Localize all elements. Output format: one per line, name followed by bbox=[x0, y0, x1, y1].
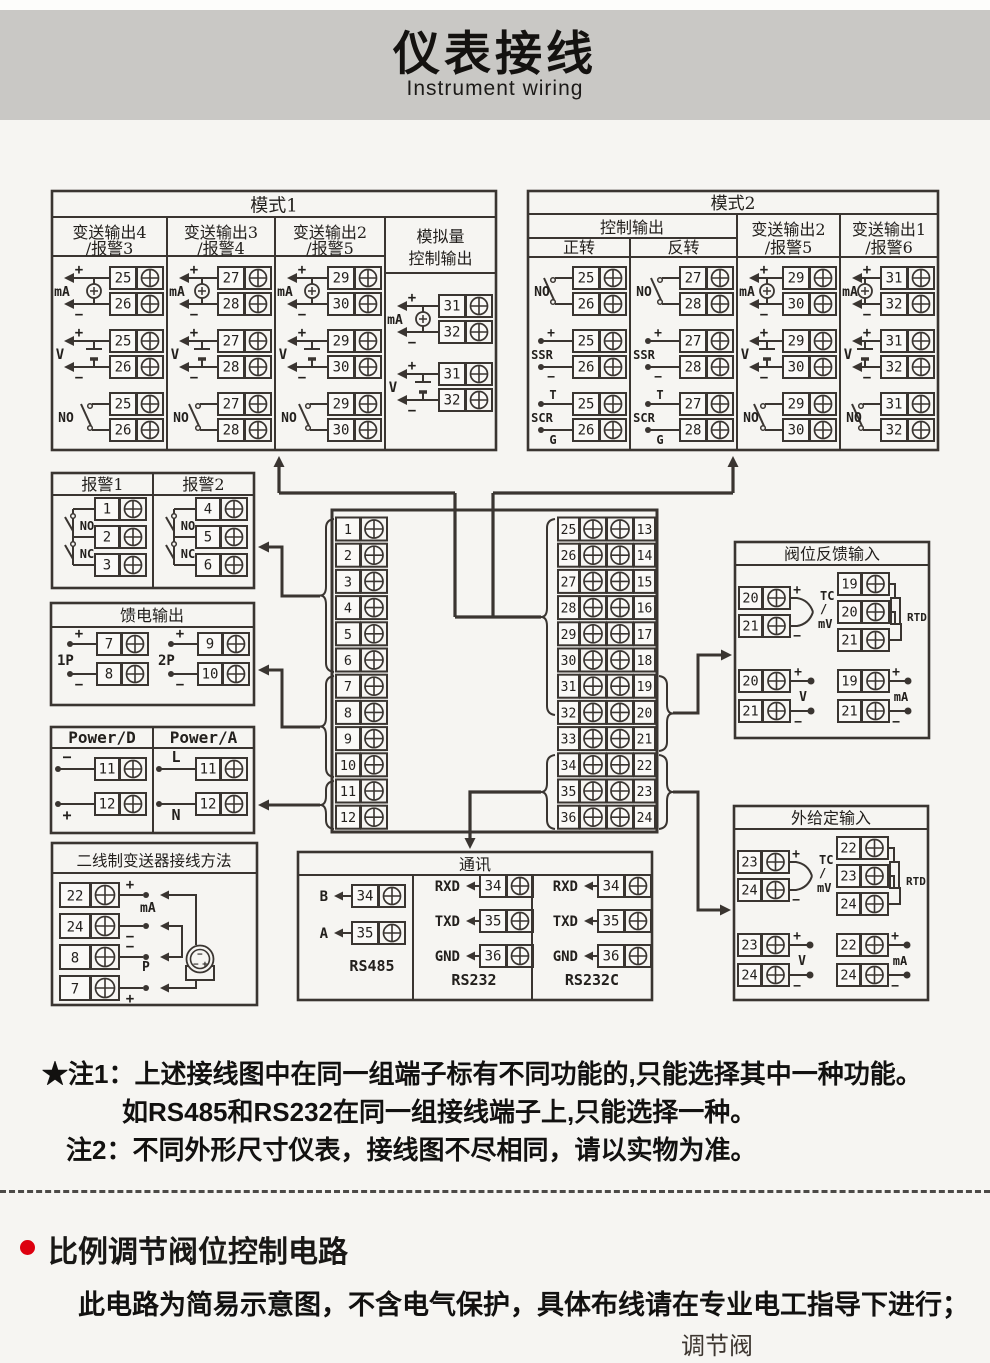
terminal-25: 25 bbox=[110, 330, 163, 352]
diagram-label: 30 bbox=[333, 297, 350, 313]
diagram-label: 27 bbox=[223, 271, 240, 287]
terminal-2: 2 bbox=[95, 526, 146, 548]
terminal-26: 26 bbox=[110, 293, 163, 315]
wiring-cell-SCR: 2526TGSCR bbox=[531, 388, 626, 447]
diagram-label: 报警2 bbox=[182, 475, 224, 494]
diagram-label: 28 bbox=[223, 360, 240, 376]
diagram-label: mA bbox=[893, 954, 908, 968]
diagram-label: − bbox=[892, 715, 900, 730]
valve-caption: 调节阀 bbox=[681, 1326, 753, 1361]
terminal-22: 22 bbox=[837, 934, 888, 956]
diagram-label: 30 bbox=[788, 360, 805, 376]
arrowhead-icon bbox=[721, 650, 732, 661]
terminal-7: 7 bbox=[97, 633, 148, 655]
comm-section-RS485: B34A35RS485 bbox=[320, 885, 405, 975]
diagram-label: V bbox=[389, 380, 398, 396]
terminal-29: 29 bbox=[783, 267, 836, 289]
wiring-cell-SSR: 2526+−SSR bbox=[531, 326, 626, 385]
diagram-label: TXD bbox=[435, 914, 460, 930]
diagram-label: + bbox=[62, 806, 71, 824]
diagram-label: 二线制变送器接线方法 bbox=[76, 852, 231, 870]
tc-mv-input: 2021+−TC/mV bbox=[739, 583, 834, 644]
diagram-label: 6 bbox=[204, 558, 212, 574]
current-input: 2224+−mA bbox=[837, 929, 911, 994]
terminal-34: 34 bbox=[480, 875, 533, 897]
diagram-label: Power/D bbox=[68, 728, 135, 747]
terminal-20: 20 bbox=[739, 587, 790, 609]
diagram-label: NO bbox=[636, 285, 652, 300]
terminal-group-brace bbox=[659, 755, 673, 829]
terminal-36: 36 bbox=[598, 945, 651, 967]
terminal-row-35: 3523 bbox=[558, 780, 655, 803]
arrowhead-icon bbox=[852, 299, 862, 309]
terminal-21: 21 bbox=[838, 629, 889, 651]
diagram-label: 25 bbox=[578, 271, 595, 287]
terminal-2: 2 bbox=[336, 544, 387, 567]
terminal-29: 29 bbox=[328, 267, 381, 289]
note-2-text: 不同外形尺寸仪表，接线图不尽相同，请以实物为准。 bbox=[132, 1135, 756, 1165]
diagram-label: V bbox=[741, 347, 750, 363]
terminal-10: 10 bbox=[336, 753, 387, 776]
diagram-label: T bbox=[656, 388, 663, 402]
terminal-27: 27 bbox=[218, 330, 271, 352]
terminal-30: 30 bbox=[328, 293, 381, 315]
diagram-label: mA bbox=[739, 285, 755, 300]
diagram-label: TC bbox=[820, 589, 834, 603]
diagram-label: 36 bbox=[603, 949, 620, 965]
wiring-cell-NO: 2728NO bbox=[173, 393, 271, 441]
diagram-label: V bbox=[799, 690, 807, 705]
diagram-label: 29 bbox=[333, 334, 350, 350]
section-body: 此电路为简易示意图，不含电气保护，具体布线请在专业电工指导下进行； bbox=[78, 1283, 969, 1322]
diagram-label: SSR bbox=[531, 348, 553, 362]
terminal-8: 8 bbox=[60, 945, 119, 969]
diagram-label: + bbox=[654, 326, 662, 341]
terminal-36: 36 bbox=[480, 945, 533, 967]
diagram-label: 2 bbox=[103, 530, 111, 546]
diagram-label: 35 bbox=[603, 914, 620, 930]
diagram-label: + bbox=[863, 262, 871, 278]
terminal-23: 23 bbox=[738, 851, 789, 873]
diagram-label: 27 bbox=[685, 334, 702, 350]
terminal-31: 31 bbox=[881, 393, 934, 415]
terminal-26: 26 bbox=[573, 356, 626, 378]
diagram-label: − bbox=[792, 893, 800, 908]
diagram-label: + bbox=[863, 325, 871, 341]
terminal-31: 31 bbox=[881, 330, 934, 352]
diagram-label: V bbox=[171, 347, 180, 363]
terminal-24: 24 bbox=[738, 964, 789, 986]
tc-mv-input: 2324+−TC/mV bbox=[738, 847, 833, 908]
terminal-row-31: 3119 bbox=[558, 675, 655, 698]
diagram-label: 馈电输出 bbox=[120, 606, 184, 625]
arrowhead-icon bbox=[465, 838, 476, 849]
diagram-label: NO bbox=[173, 411, 189, 426]
diagram-label: 26 bbox=[115, 360, 132, 376]
terminal-3: 3 bbox=[95, 554, 146, 576]
diagram-label: A bbox=[320, 926, 329, 942]
terminal-9: 9 bbox=[198, 633, 249, 655]
terminal-28: 28 bbox=[218, 293, 271, 315]
diagram-label: RXD bbox=[553, 879, 578, 895]
diagram-label: 28 bbox=[561, 602, 577, 617]
diagram-label: − bbox=[75, 677, 83, 693]
terminal-21: 21 bbox=[739, 700, 790, 722]
diagram-label: 35 bbox=[485, 914, 502, 930]
terminal-35: 35 bbox=[598, 910, 651, 932]
diagram-label: 11 bbox=[200, 762, 217, 778]
diagram-label: 27 bbox=[685, 271, 702, 287]
diagram-label: 4 bbox=[204, 502, 212, 518]
diagram-label: 35 bbox=[357, 926, 374, 942]
arrowhead-icon bbox=[334, 892, 343, 901]
terminal-row-36: 3624 bbox=[558, 806, 655, 829]
terminal-28: 28 bbox=[218, 356, 271, 378]
terminal-32: 32 bbox=[881, 419, 934, 441]
terminal-30: 30 bbox=[328, 356, 381, 378]
box-mode1: 模式1变送输出4/报警32526+−mA2526+−V2526NO变送输出3/报… bbox=[52, 191, 496, 450]
box-feed-output: 馈电输出78+−1P910+−2P bbox=[51, 603, 254, 705]
current-input: 1921+−mA bbox=[838, 665, 912, 730]
diagram-label: V bbox=[844, 347, 853, 363]
diagram-label: V bbox=[56, 347, 65, 363]
diagram-label: 26 bbox=[561, 549, 577, 564]
terminal-23: 23 bbox=[837, 865, 888, 887]
diagram-label: 23 bbox=[741, 855, 757, 871]
diagram-label: + bbox=[792, 847, 800, 862]
diagram-label: 29 bbox=[333, 397, 350, 413]
terminal-32: 32 bbox=[881, 293, 934, 315]
diagram-label: mA bbox=[169, 285, 185, 300]
diagram-label: + bbox=[190, 262, 198, 278]
note-1-text: 上述接线图中在同一组端子标有不同功能的,只能选择其中一种功能。 bbox=[134, 1059, 921, 1089]
terminal-19: 19 bbox=[838, 670, 889, 692]
terminal-20: 20 bbox=[739, 670, 790, 692]
diagram-label: + bbox=[794, 665, 802, 680]
comm-section-RS232C: RXD34TXD35GND36RS232C bbox=[553, 875, 651, 989]
arrowhead-icon bbox=[160, 891, 169, 900]
diagram-label: + bbox=[75, 325, 83, 341]
diagram-label: /报警5 bbox=[306, 239, 354, 258]
diagram-label: + bbox=[202, 960, 208, 970]
wiring-cell-NO: 2930NO bbox=[281, 393, 381, 441]
diagram-label: 变送输出2 bbox=[751, 220, 825, 239]
terminal-29: 29 bbox=[328, 393, 381, 415]
terminal-29: 29 bbox=[783, 393, 836, 415]
diagram-label: + bbox=[408, 290, 416, 306]
arrowhead-icon bbox=[287, 299, 297, 309]
diagram-label: 21 bbox=[742, 704, 758, 720]
terminal-24: 24 bbox=[837, 964, 888, 986]
diagram-label: 28 bbox=[685, 360, 702, 376]
diagram-label: 34 bbox=[357, 889, 374, 905]
diagram-label: + bbox=[126, 877, 134, 893]
terminal-5: 5 bbox=[196, 526, 247, 548]
dashed-separator bbox=[0, 1190, 990, 1193]
red-bullet-icon bbox=[20, 1240, 35, 1255]
diagram-label: 21 bbox=[841, 704, 857, 720]
diagram-label: − bbox=[298, 370, 306, 386]
wiring-cell-NO: 2728NO bbox=[636, 267, 733, 315]
note-1-head: ★注1： bbox=[42, 1059, 134, 1089]
diagram-label: 14 bbox=[637, 549, 653, 564]
diagram-label: 17 bbox=[637, 628, 653, 643]
diagram-label: + bbox=[793, 929, 801, 944]
terminal-4: 4 bbox=[196, 498, 247, 520]
terminal-34: 34 bbox=[598, 875, 651, 897]
diagram-label: − bbox=[298, 307, 306, 323]
terminal-11: 11 bbox=[196, 758, 247, 780]
diagram-label: 15 bbox=[637, 575, 653, 590]
diagram-label: 10 bbox=[340, 758, 356, 774]
diagram-label: 20 bbox=[742, 591, 758, 607]
box-mode2: 模式2控制输出正转2526NO2526+−SSR2526TGSCR反转2728N… bbox=[528, 191, 938, 450]
terminal-28: 28 bbox=[218, 419, 271, 441]
diagram-label: 32 bbox=[886, 423, 903, 439]
arrowhead-icon bbox=[397, 301, 407, 311]
rtd-input: 222324RTD bbox=[837, 837, 926, 915]
diagram-label: 31 bbox=[444, 367, 461, 383]
diagram-label: 3 bbox=[103, 558, 111, 574]
diagram-label: + bbox=[547, 326, 555, 341]
diagram-label: + bbox=[892, 665, 900, 680]
diagram-label: 35 bbox=[561, 785, 577, 800]
diagram-label: 36 bbox=[485, 949, 502, 965]
diagram-label: 21 bbox=[841, 633, 857, 649]
terminal-27: 27 bbox=[680, 393, 733, 415]
diagram-label: mA bbox=[54, 285, 70, 300]
arrowhead-icon bbox=[64, 362, 74, 372]
terminal-group-brace bbox=[541, 519, 555, 715]
terminal-25: 25 bbox=[573, 330, 626, 352]
diagram-label: 20 bbox=[841, 605, 857, 621]
terminal-row-34: 3422 bbox=[558, 753, 655, 776]
diagram-label: 反转 bbox=[667, 238, 699, 257]
terminal-31: 31 bbox=[881, 267, 934, 289]
diagram-label: − bbox=[654, 370, 662, 385]
diagram-label: − bbox=[408, 335, 416, 351]
diagram-label: + bbox=[408, 358, 416, 374]
arrowhead-icon bbox=[466, 882, 475, 891]
diagram-label: 7 bbox=[105, 637, 113, 653]
arrowhead-icon bbox=[179, 336, 189, 346]
diagram-label: mA bbox=[277, 285, 293, 300]
terminal-row-25: 2513 bbox=[558, 518, 655, 541]
diagram-label: NO bbox=[534, 285, 550, 300]
diagram-label: 8 bbox=[105, 667, 113, 683]
wiring-cell-SSR: 2728+−SSR bbox=[633, 326, 733, 385]
terminal-12: 12 bbox=[336, 806, 387, 829]
diagram-label: 模式1 bbox=[250, 196, 297, 217]
arrowhead-icon bbox=[64, 299, 74, 309]
diagram-label: NC bbox=[80, 547, 94, 561]
terminal-4: 4 bbox=[336, 596, 387, 619]
diagram-label: 模式2 bbox=[711, 194, 756, 214]
diagram-label: 31 bbox=[886, 271, 903, 287]
diagram-label: /报警3 bbox=[86, 239, 134, 258]
diagram-label: 24 bbox=[840, 897, 856, 913]
diagram-label: 27 bbox=[223, 334, 240, 350]
diagram-label: V bbox=[798, 954, 806, 969]
terminal-row-30: 3018 bbox=[558, 649, 655, 672]
terminal-11: 11 bbox=[336, 780, 387, 803]
diagram-label: mV bbox=[818, 617, 832, 631]
diagram-label: 24 bbox=[741, 968, 757, 984]
terminal-6: 6 bbox=[336, 649, 387, 672]
diagram-label: − bbox=[793, 629, 801, 644]
diagram-label: P bbox=[142, 960, 150, 975]
diagram-label: 报警1 bbox=[81, 475, 123, 494]
diagram-label: L bbox=[171, 748, 180, 766]
diagram-label: 26 bbox=[578, 360, 595, 376]
diagram-label: 24 bbox=[840, 968, 856, 984]
terminal-row-27: 2715 bbox=[558, 570, 655, 593]
diagram-label: − bbox=[190, 370, 198, 386]
arrowhead-icon bbox=[466, 917, 475, 926]
diagram-label: 10 bbox=[202, 667, 219, 683]
page-subtitle: Instrument wiring bbox=[407, 77, 584, 101]
arrowhead-icon bbox=[466, 952, 475, 961]
diagram-label: NO bbox=[743, 411, 759, 426]
comm-section-RS232: RXD34TXD35GND36RS232 bbox=[435, 875, 533, 989]
diagram-label: 7 bbox=[71, 982, 79, 998]
diagram-label: 2 bbox=[344, 548, 352, 564]
diagram-label: SSR bbox=[633, 348, 655, 362]
terminal-row-29: 2917 bbox=[558, 622, 655, 645]
diagram-label: + bbox=[126, 991, 134, 1007]
diagram-label: SCR bbox=[531, 411, 553, 425]
box-power: Power/D11−12+Power/A11L12N bbox=[51, 727, 254, 833]
diagram-label: 1 bbox=[344, 522, 352, 538]
terminal-22: 22 bbox=[837, 837, 888, 859]
diagram-label: 27 bbox=[685, 397, 702, 413]
page-banner: 仪表接线 Instrument wiring bbox=[0, 10, 990, 120]
terminal-31: 31 bbox=[439, 363, 492, 385]
wiring-cell-NO: 2526NO bbox=[58, 393, 163, 441]
arrowhead-icon bbox=[258, 800, 269, 811]
diagram-label: RS485 bbox=[349, 957, 394, 975]
arrowhead-icon bbox=[852, 273, 862, 283]
box-valve-feedback: 阀位反馈输入2021+−TC/mV192021RTD2021+−V1921+−m… bbox=[735, 542, 929, 738]
diagram-label: 1P bbox=[57, 653, 74, 669]
box-alarm-1-2: 报警1123NONC报警2456NONC bbox=[52, 473, 254, 588]
diagram-label: − bbox=[891, 979, 899, 994]
terminal-22: 22 bbox=[60, 883, 119, 907]
diagram-label: 20 bbox=[742, 674, 758, 690]
diagram-label: 阀位反馈输入 bbox=[784, 545, 880, 564]
diagram-label: 29 bbox=[561, 628, 577, 643]
diagram-label: 7 bbox=[344, 679, 352, 695]
terminal-25: 25 bbox=[573, 267, 626, 289]
diagram-label: 变送输出1 bbox=[852, 220, 926, 239]
terminal-row-28: 2816 bbox=[558, 596, 655, 619]
diagram-label: 26 bbox=[115, 297, 132, 313]
diagram-label: mA bbox=[387, 313, 403, 328]
terminal-group-brace bbox=[541, 755, 555, 829]
terminal-30: 30 bbox=[783, 356, 836, 378]
diagram-label: − bbox=[75, 307, 83, 323]
diagram-label: 23 bbox=[637, 785, 653, 800]
terminal-12: 12 bbox=[95, 793, 146, 815]
diagram-label: 29 bbox=[788, 397, 805, 413]
terminal-28: 28 bbox=[680, 356, 733, 378]
diagram-label: NO bbox=[281, 411, 297, 426]
diagram-label: 25 bbox=[115, 397, 132, 413]
diagram-label: 21 bbox=[742, 619, 758, 635]
arrowhead-icon bbox=[287, 362, 297, 372]
diagram-label: 正转 bbox=[563, 238, 595, 257]
terminal-29: 29 bbox=[783, 330, 836, 352]
diagram-label: 2P bbox=[158, 653, 175, 669]
arrowhead-icon bbox=[584, 952, 593, 961]
terminal-26: 26 bbox=[110, 419, 163, 441]
diagram-label: − bbox=[197, 950, 203, 960]
note-2-head: 注2： bbox=[66, 1135, 132, 1165]
terminal-3: 3 bbox=[336, 570, 387, 593]
diagram-label: 36 bbox=[561, 811, 577, 826]
terminal-25: 25 bbox=[573, 393, 626, 415]
diagram-label: 32 bbox=[444, 325, 461, 341]
terminal-1: 1 bbox=[336, 518, 387, 541]
diagram-label: /报警4 bbox=[197, 239, 245, 258]
terminal-35: 35 bbox=[352, 922, 405, 944]
arrowhead-icon bbox=[852, 336, 862, 346]
voltage-input: 2324+−V bbox=[738, 929, 814, 994]
diagram-label: 32 bbox=[561, 706, 577, 721]
diagram-label: − bbox=[75, 370, 83, 386]
terminal-8: 8 bbox=[97, 663, 148, 685]
diagram-label: RS232C bbox=[565, 971, 619, 989]
terminal-26: 26 bbox=[110, 356, 163, 378]
diagram-label: T bbox=[549, 388, 556, 402]
diagram-label: V bbox=[279, 347, 288, 363]
diagram-label: 30 bbox=[561, 654, 577, 669]
arrowhead-icon bbox=[584, 882, 593, 891]
terminal-27: 27 bbox=[218, 393, 271, 415]
diagram-label: 22 bbox=[637, 759, 653, 774]
terminal-21: 21 bbox=[838, 700, 889, 722]
instrument-wiring-page: 模式1变送输出4/报警32526+−mA2526+−V2526NO变送输出3/报… bbox=[0, 0, 990, 1363]
diagram-label: mA bbox=[894, 690, 909, 704]
wiring-cell-V: 3132+−V bbox=[844, 325, 934, 386]
diagram-label: 8 bbox=[344, 705, 352, 721]
diagram-label: 11 bbox=[340, 784, 356, 800]
terminal-8: 8 bbox=[336, 701, 387, 724]
terminal-28: 28 bbox=[680, 419, 733, 441]
diagram-label: 控制输出 bbox=[408, 249, 472, 268]
diagram-label: 13 bbox=[637, 523, 653, 538]
note-1-line-1: ★注1：上述接线图中在同一组端子标有不同功能的,只能选择其中一种功能。 bbox=[42, 1054, 922, 1091]
arrowhead-icon bbox=[160, 953, 169, 962]
terminal-row-32: 3220 bbox=[558, 701, 655, 724]
diagram-label: 22 bbox=[840, 841, 856, 857]
terminal-27: 27 bbox=[218, 267, 271, 289]
terminal-30: 30 bbox=[783, 419, 836, 441]
diagram-label: 23 bbox=[741, 938, 757, 954]
arrowhead-icon bbox=[258, 542, 269, 553]
diagram-label: 31 bbox=[444, 299, 461, 315]
terminal-7: 7 bbox=[60, 976, 119, 1000]
diagram-label: 6 bbox=[344, 653, 352, 669]
diagram-label: NC bbox=[181, 547, 195, 561]
diagram-label: 24 bbox=[741, 883, 757, 899]
diagram-label: 31 bbox=[561, 680, 577, 695]
note-1-line-2: 如RS485和RS232在同一组接线端子上,只能选择一种。 bbox=[122, 1092, 756, 1129]
diagram-label: 通讯 bbox=[459, 855, 491, 874]
terminal-25: 25 bbox=[110, 267, 163, 289]
arrowhead-icon bbox=[749, 273, 759, 283]
terminal-26: 26 bbox=[573, 419, 626, 441]
